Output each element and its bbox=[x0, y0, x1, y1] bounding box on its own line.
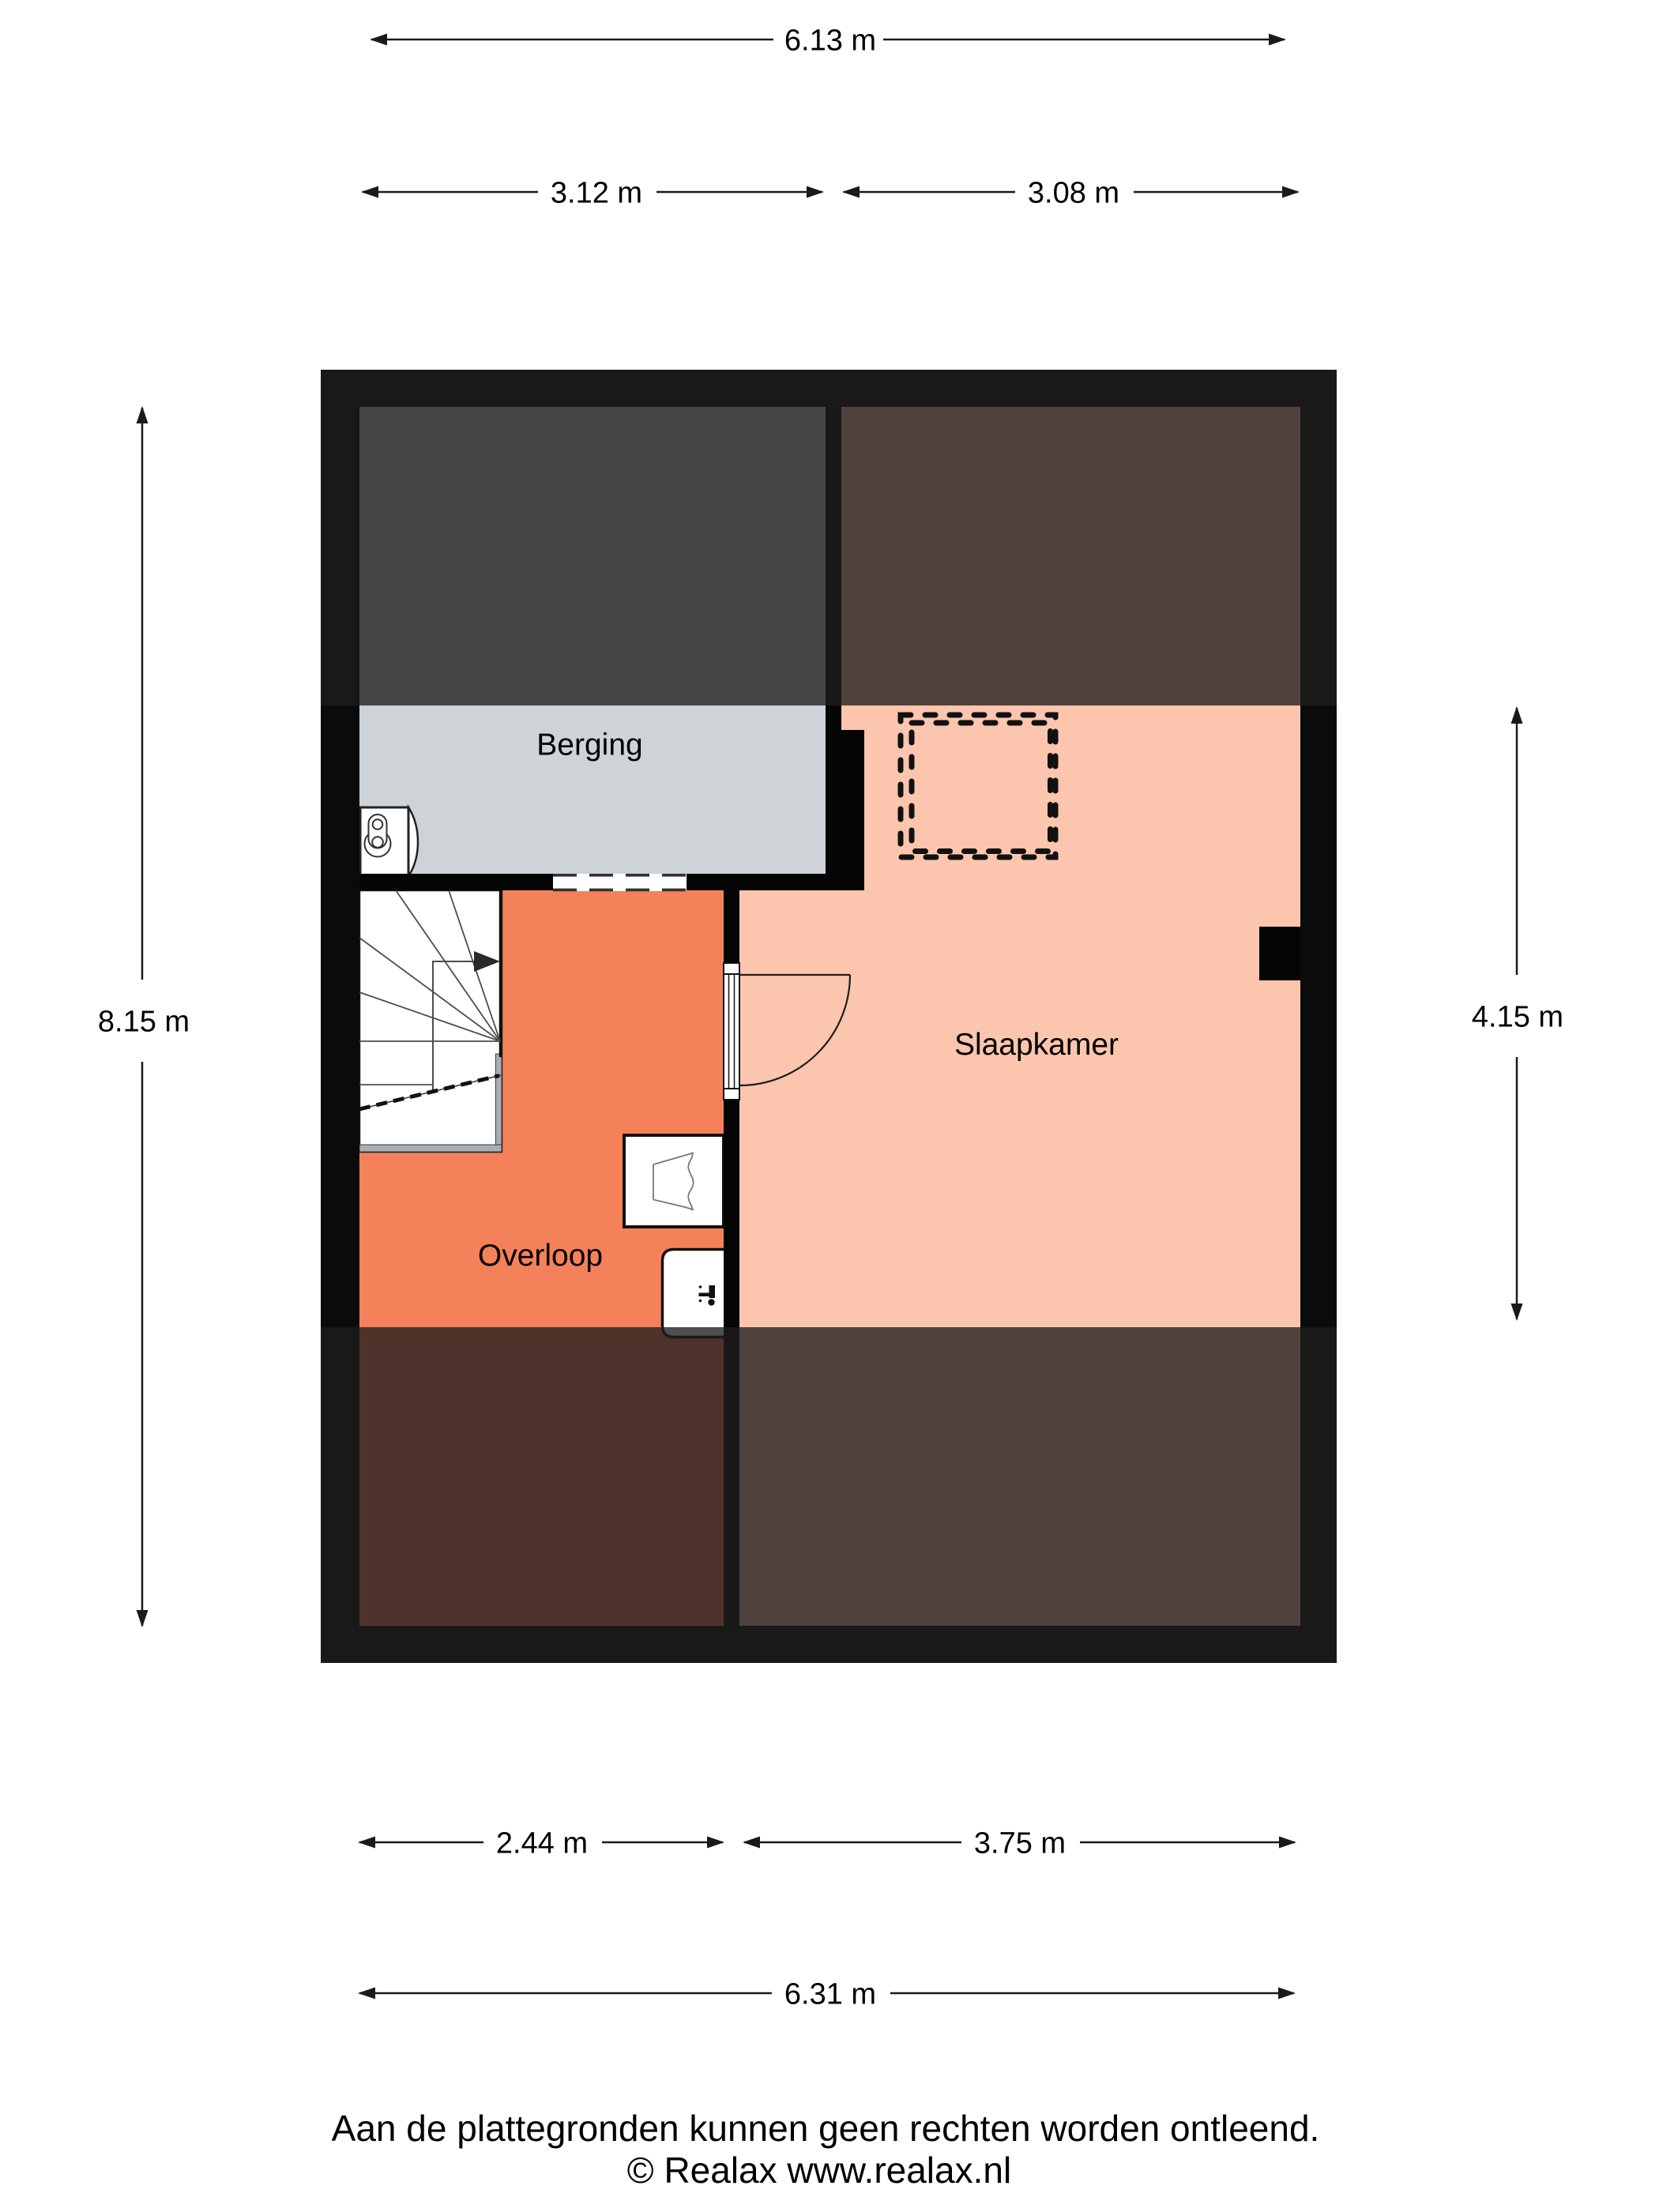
svg-text:Slaapkamer: Slaapkamer bbox=[954, 1028, 1119, 1062]
svg-text:Aan de plattegronden kunnen ge: Aan de plattegronden kunnen geen rechten… bbox=[332, 2108, 1320, 2149]
svg-text:© Realax www.realax.nl: © Realax www.realax.nl bbox=[627, 2150, 1011, 2191]
svg-text:Berging: Berging bbox=[536, 728, 642, 762]
svg-text:6.31 m: 6.31 m bbox=[784, 1978, 876, 2011]
svg-text:8.15 m: 8.15 m bbox=[98, 1006, 190, 1039]
svg-text:3.75 m: 3.75 m bbox=[974, 1827, 1066, 1860]
svg-text:6.13 m: 6.13 m bbox=[784, 24, 876, 58]
svg-text:3.12 m: 3.12 m bbox=[551, 177, 642, 210]
svg-text:4.15 m: 4.15 m bbox=[1472, 1001, 1563, 1034]
svg-text:2.44 m: 2.44 m bbox=[496, 1827, 588, 1860]
svg-text:3.08 m: 3.08 m bbox=[1028, 177, 1119, 210]
svg-text:Overloop: Overloop bbox=[478, 1239, 603, 1273]
